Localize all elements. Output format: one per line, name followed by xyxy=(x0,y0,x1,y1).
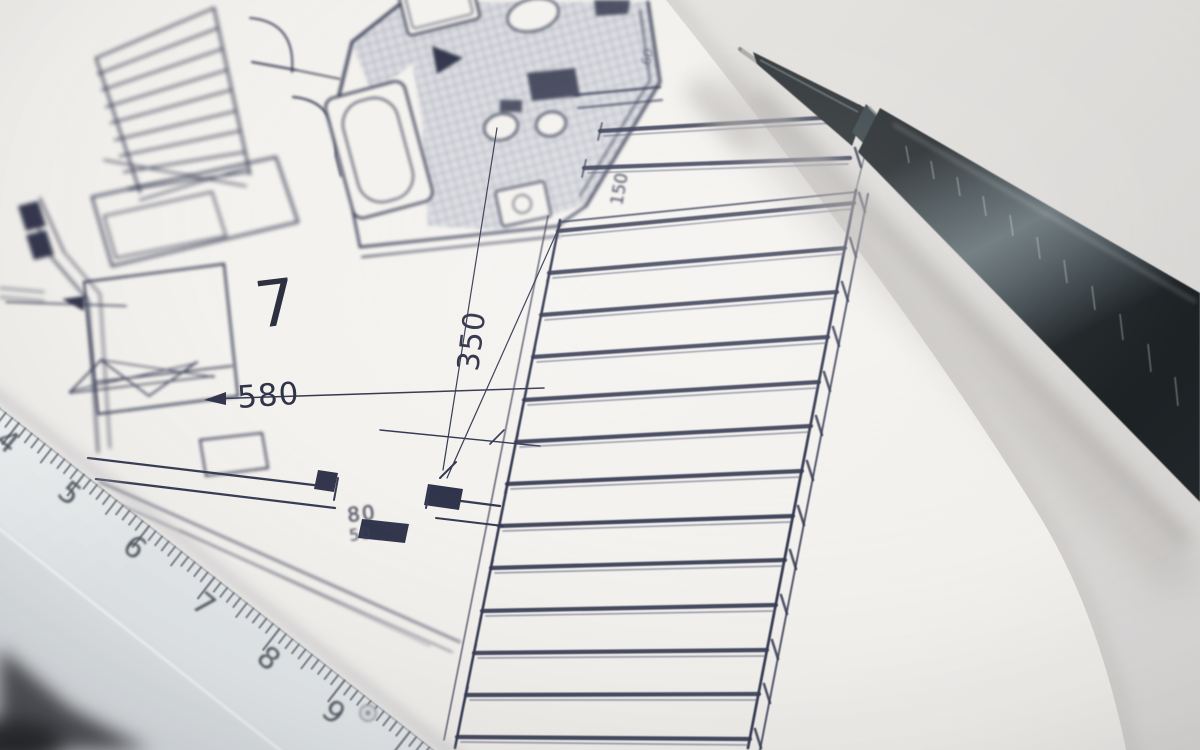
dimension-80: 80 xyxy=(346,500,378,527)
cistern xyxy=(527,68,580,101)
dimension-50: 50 xyxy=(348,523,373,545)
dimension-350: 350 xyxy=(451,309,493,373)
dimension-580: 580 xyxy=(236,376,301,416)
photo-canvas: 7 580 350 80 50 150 60 xyxy=(0,0,1200,750)
ruler-screw xyxy=(360,705,376,721)
pen-tip-point xyxy=(738,47,742,51)
photograph-floor-plan-scene: 7 580 350 80 50 150 60 xyxy=(0,0,1200,750)
